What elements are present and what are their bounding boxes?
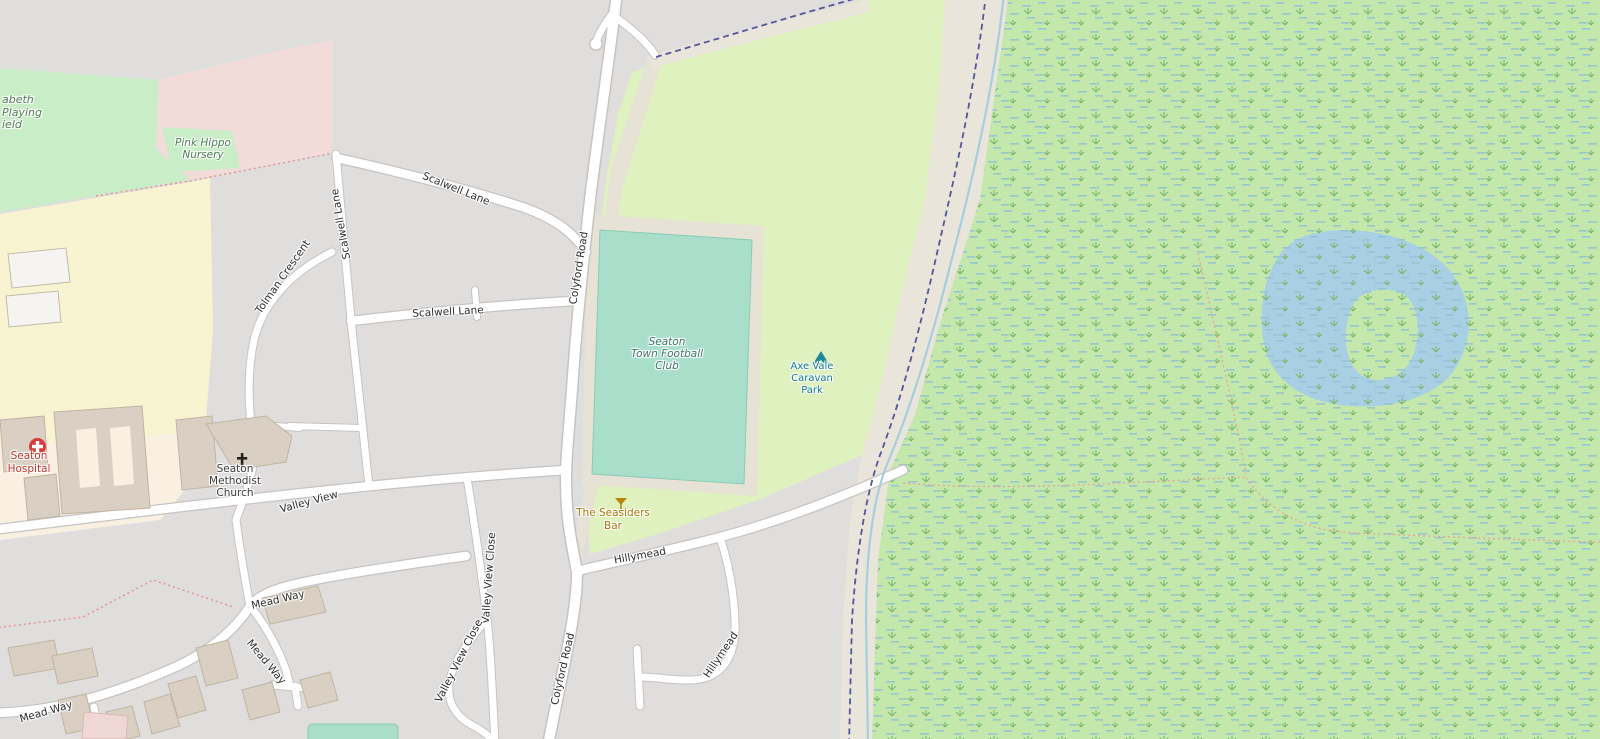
map-base-svg bbox=[0, 0, 1600, 739]
map-canvas[interactable]: Scalwell Lane Scalwell Lane Scalwell Lan… bbox=[0, 0, 1600, 739]
